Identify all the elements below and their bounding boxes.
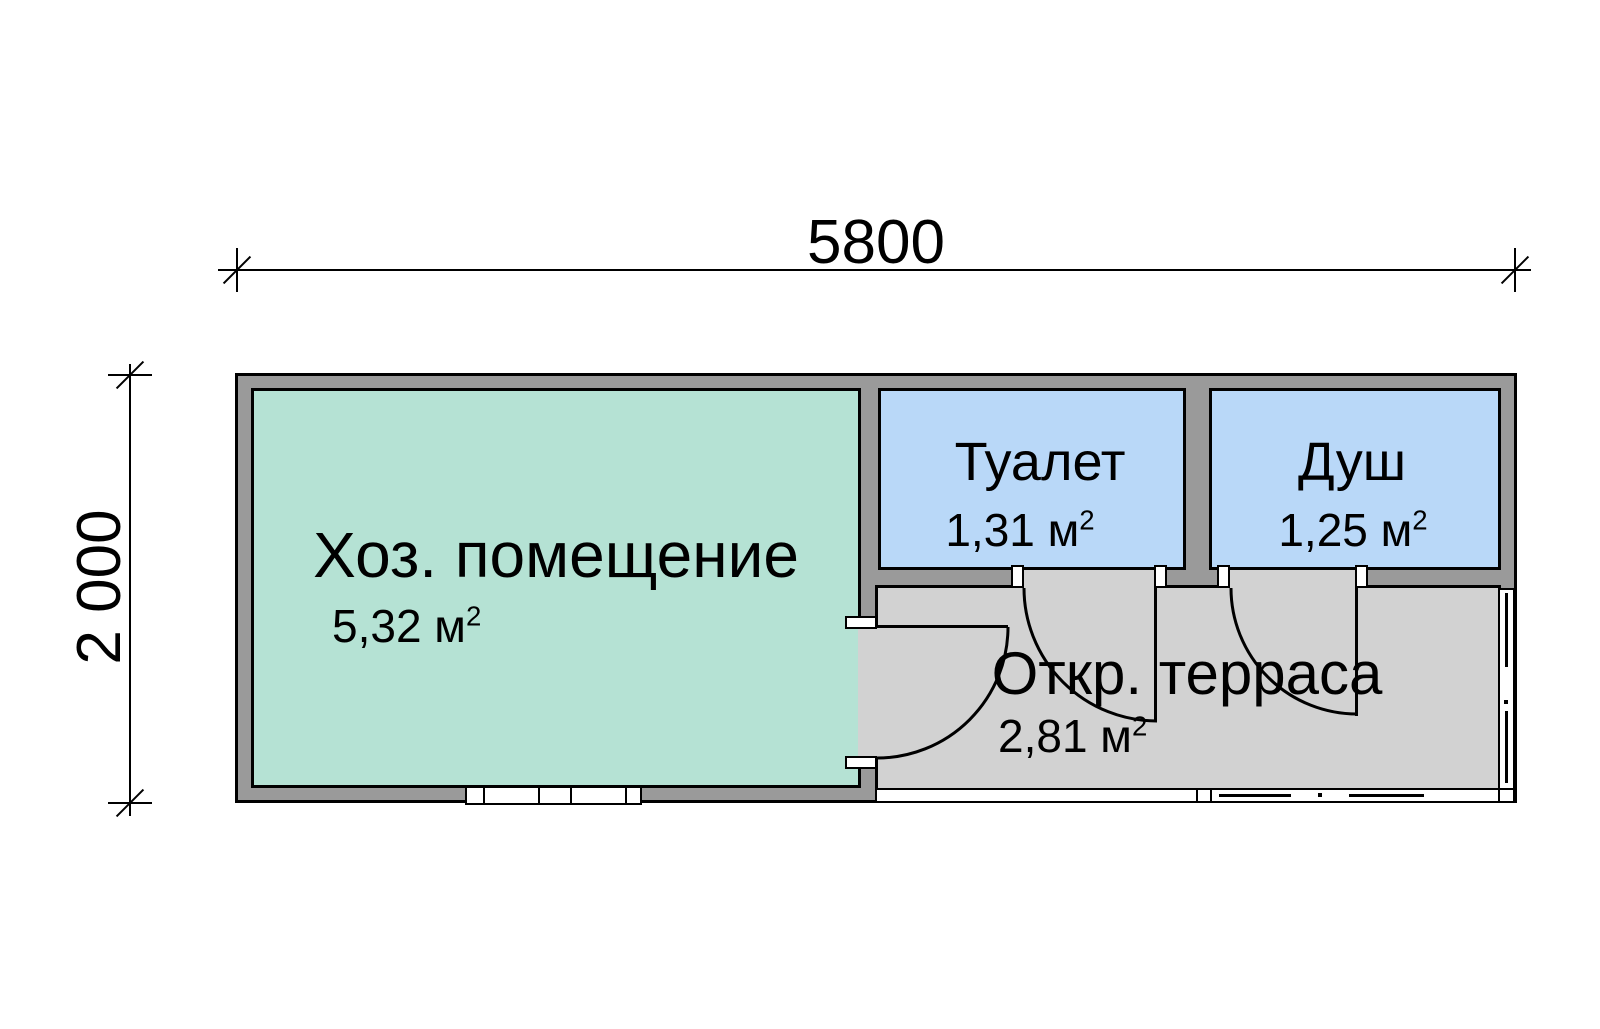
- door-jamb: [845, 756, 877, 769]
- terrace-edge-dash: [1219, 794, 1291, 797]
- terrace-edge-dash: [1349, 794, 1424, 797]
- door-opening-utility: [858, 627, 878, 758]
- area-value: 5,32 м: [332, 600, 466, 652]
- room-shower-area: 1,25 м2: [1203, 506, 1503, 554]
- door-opening-toilet: [1023, 570, 1157, 588]
- window-mullion: [538, 788, 540, 803]
- floor-plan: 5800 2 000: [0, 0, 1600, 1029]
- window-mullion: [483, 788, 485, 803]
- window-utility: [465, 786, 642, 805]
- terrace-edge-dash: [1505, 711, 1508, 783]
- dimension-height-label: 2 000: [69, 437, 131, 737]
- door-opening-shower: [1230, 570, 1358, 588]
- dimension-width-label: 5800: [726, 212, 1026, 274]
- terrace-edge-dash: [1505, 593, 1508, 667]
- window-mullion: [570, 788, 572, 803]
- room-terrace-area: 2,81 м2: [998, 712, 1298, 760]
- room-terrace-name: Откр. терраса: [937, 642, 1437, 705]
- terrace-edge-dot: [1504, 700, 1508, 704]
- area-sup: 2: [1079, 505, 1094, 536]
- room-shower-name: Душ: [1202, 434, 1502, 491]
- area-value: 1,25 м: [1278, 504, 1412, 556]
- room-utility-area: 5,32 м2: [332, 602, 632, 650]
- area-value: 1,31 м: [945, 504, 1079, 556]
- area-sup: 2: [466, 601, 481, 632]
- door-jamb: [1217, 565, 1230, 588]
- door-leaf-utility: [877, 625, 1008, 628]
- door-jamb: [1154, 565, 1167, 588]
- door-jamb: [845, 616, 877, 629]
- terrace-edge-post: [1196, 788, 1212, 803]
- door-jamb: [1011, 565, 1024, 588]
- room-toilet-area: 1,31 м2: [870, 506, 1170, 554]
- room-toilet-name: Туалет: [890, 434, 1190, 491]
- terrace-edge-dot: [1318, 793, 1322, 797]
- door-jamb: [1355, 565, 1368, 588]
- area-sup: 2: [1132, 711, 1147, 742]
- area-value: 2,81 м: [998, 710, 1132, 762]
- terrace-corner-post: [1498, 788, 1515, 803]
- area-sup: 2: [1412, 505, 1427, 536]
- window-mullion: [625, 788, 627, 803]
- room-utility-name: Хоз. помещение: [251, 522, 861, 589]
